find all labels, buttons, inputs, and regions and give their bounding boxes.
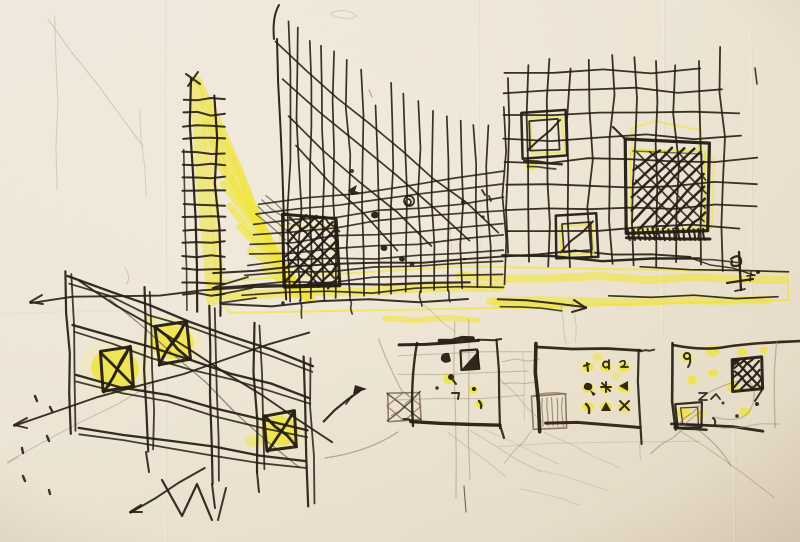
sketch-photo: Architectural concept sketches — black i…	[0, 0, 800, 542]
sketch-canvas	[0, 0, 800, 542]
